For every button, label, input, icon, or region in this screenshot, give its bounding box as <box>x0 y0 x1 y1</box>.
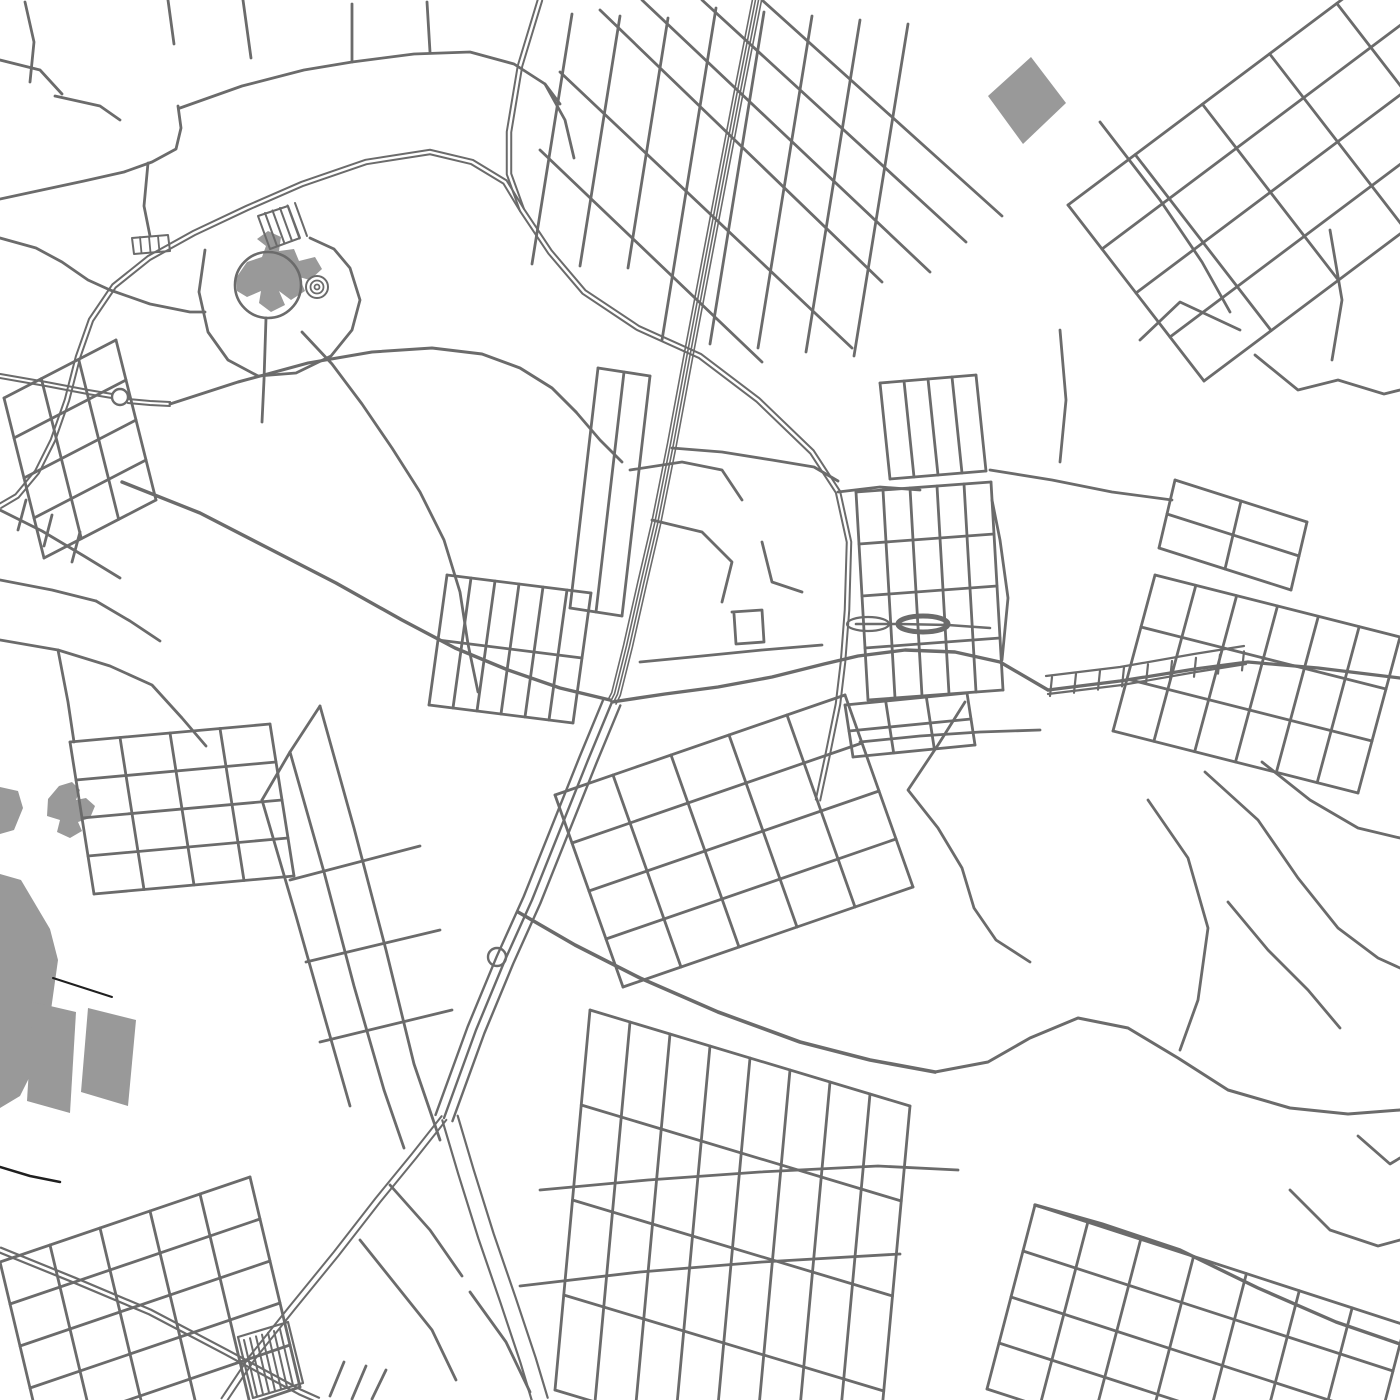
motorway-layer <box>222 0 762 1400</box>
spiral-inner <box>315 285 320 290</box>
building-top-right <box>988 57 1066 144</box>
circular-features-layer <box>112 252 948 966</box>
double-line-roads-layer <box>0 0 851 1400</box>
edge-strip-left <box>0 787 23 834</box>
spiral-mid <box>311 281 324 294</box>
lot-b-bottom-left <box>81 1008 136 1106</box>
map-canvas <box>0 0 1400 1400</box>
lot-a-bottom-left <box>27 1002 76 1113</box>
street-grid-layer <box>0 0 1400 1400</box>
park-pond <box>236 231 322 312</box>
roundabout-west <box>112 389 128 405</box>
spiral-outer <box>306 276 328 298</box>
pond-left <box>47 782 95 838</box>
city-street-map <box>0 0 1400 1400</box>
